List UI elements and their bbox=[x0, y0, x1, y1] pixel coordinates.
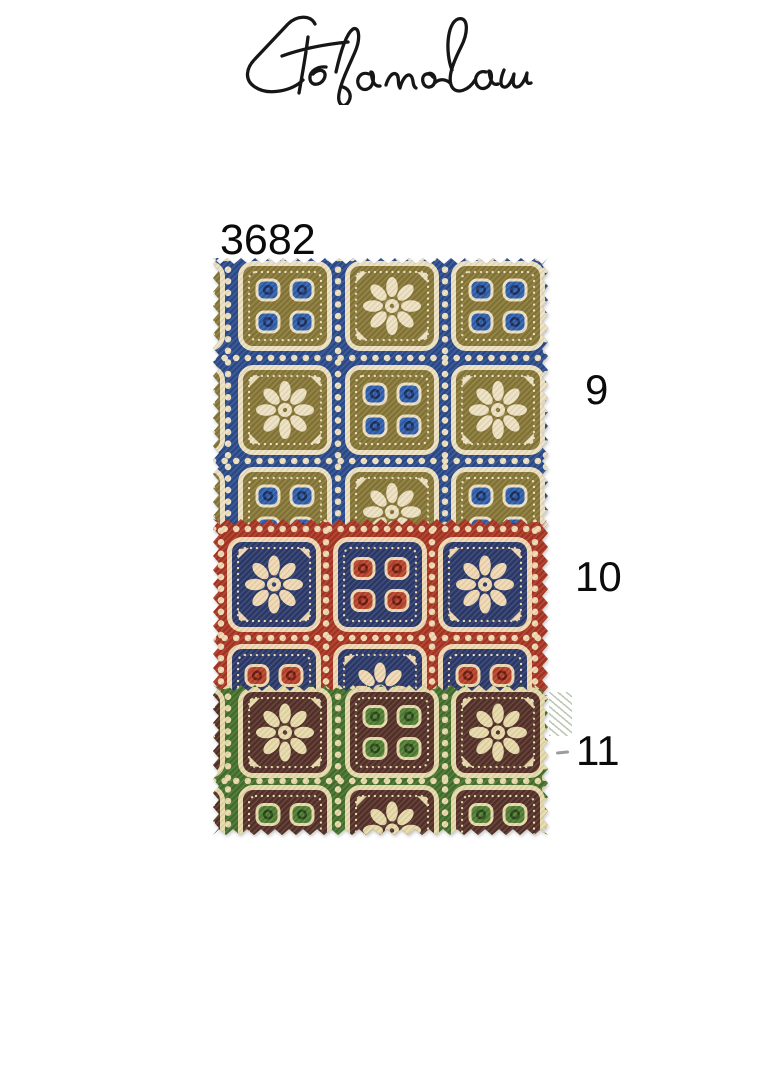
frayed-threads-mark bbox=[549, 692, 572, 736]
fabric-swatch-9-print bbox=[213, 258, 548, 530]
sample-card-page: 3682 9 10 11 bbox=[0, 0, 760, 1080]
swatch-9-label: 9 bbox=[585, 369, 608, 411]
swatch-10-label: 10 bbox=[575, 556, 622, 598]
signature-stroke bbox=[247, 17, 531, 105]
pattern-number: 3682 bbox=[220, 219, 316, 262]
fabric-swatch-9 bbox=[213, 258, 548, 535]
brand-signature bbox=[240, 10, 540, 105]
swatch-11-label: 11 bbox=[576, 730, 620, 772]
fabric-swatch-11 bbox=[213, 685, 548, 840]
fabric-swatch-10 bbox=[213, 519, 548, 701]
fabric-swatch-11-print bbox=[213, 685, 548, 835]
stray-fiber-mark bbox=[556, 750, 569, 754]
fabric-swatch-10-print bbox=[213, 519, 548, 696]
